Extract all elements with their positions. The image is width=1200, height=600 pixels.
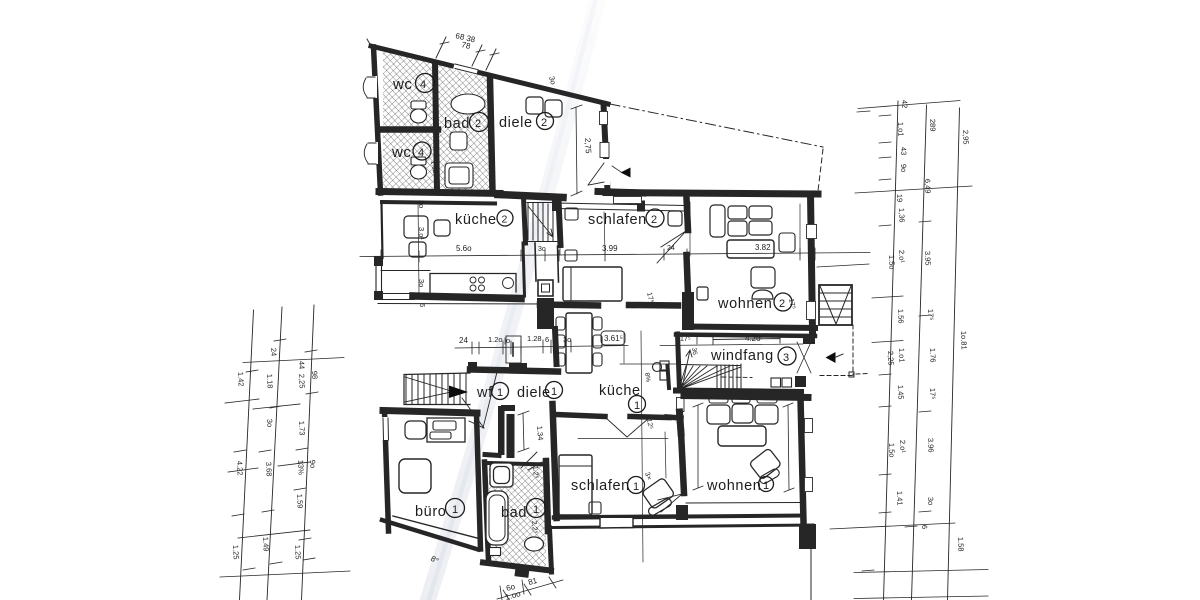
svg-text:1.59: 1.59 [295, 494, 305, 509]
svg-text:3.95: 3.95 [923, 251, 933, 266]
svg-text:2,25: 2,25 [297, 374, 307, 389]
svg-text:17⁵: 17⁵ [680, 336, 691, 343]
svg-text:wc: wc [392, 76, 413, 93]
svg-text:bad: bad [444, 116, 470, 132]
svg-text:6,49: 6,49 [923, 179, 933, 194]
svg-text:3.61⁵: 3.61⁵ [604, 334, 623, 343]
svg-text:17⁵: 17⁵ [928, 388, 937, 400]
svg-text:1.41: 1.41 [895, 491, 905, 506]
svg-text:3o: 3o [265, 419, 274, 428]
svg-text:6: 6 [545, 335, 549, 344]
svg-text:|o: |o [504, 336, 510, 345]
svg-text:1.25: 1.25 [293, 545, 303, 560]
svg-text:17⁵: 17⁵ [926, 309, 935, 321]
svg-text:1: 1 [497, 387, 504, 399]
svg-text:4: 4 [420, 79, 427, 91]
svg-text:1.o1: 1.o1 [896, 122, 906, 137]
svg-text:1: 1 [634, 400, 641, 412]
svg-text:1.25: 1.25 [231, 545, 241, 560]
svg-text:1: 1 [763, 480, 770, 492]
svg-text:98: 98 [310, 371, 319, 380]
svg-text:2: 2 [779, 298, 786, 310]
svg-text:bad: bad [501, 505, 527, 521]
svg-text:4.22: 4.22 [235, 461, 245, 476]
svg-text:13%: 13% [296, 460, 306, 476]
svg-text:wf: wf [476, 385, 493, 401]
svg-text:1.2⁵: 1.2⁵ [531, 466, 539, 479]
svg-text:1.18: 1.18 [265, 374, 275, 389]
svg-text:3o: 3o [926, 497, 935, 506]
svg-text:9o: 9o [308, 460, 317, 469]
svg-text:2.o¹: 2.o¹ [897, 250, 906, 264]
svg-text:1.49: 1.49 [261, 537, 271, 552]
svg-text:2,95: 2,95 [961, 130, 971, 145]
svg-text:küche: küche [455, 212, 497, 228]
svg-text:1.28: 1.28 [527, 334, 542, 343]
svg-text:wohnen: wohnen [717, 296, 772, 312]
svg-text:1: 1 [533, 504, 540, 516]
svg-text:1.56: 1.56 [896, 309, 906, 324]
svg-text:24: 24 [667, 245, 675, 252]
svg-text:289: 289 [928, 119, 937, 132]
svg-text:19: 19 [895, 194, 904, 203]
svg-text:1: 1 [633, 481, 640, 493]
svg-text:42: 42 [900, 100, 909, 109]
svg-text:3.68: 3.68 [264, 462, 274, 477]
svg-text:1.5o: 1.5o [887, 443, 897, 458]
svg-text:küche: küche [599, 383, 641, 399]
svg-text:3: 3 [783, 352, 790, 364]
svg-text:1: 1 [551, 386, 558, 398]
svg-text:diele: diele [499, 115, 533, 131]
svg-text:4.2o: 4.2o [745, 334, 761, 343]
svg-text:24: 24 [269, 348, 278, 357]
svg-text:3.82: 3.82 [755, 243, 771, 252]
svg-text:3o: 3o [538, 246, 546, 253]
svg-text:1,36: 1,36 [897, 208, 907, 223]
svg-text:9o: 9o [899, 164, 908, 173]
svg-text:1.76: 1.76 [928, 348, 938, 363]
svg-text:2: 2 [502, 214, 508, 226]
svg-text:2: 2 [475, 118, 482, 130]
svg-text:43: 43 [899, 147, 908, 156]
svg-text:wohnen: wohnen [706, 478, 761, 494]
svg-text:wc: wc [391, 144, 412, 161]
svg-text:2: 2 [541, 117, 548, 129]
svg-text:1.45: 1.45 [896, 385, 906, 400]
svg-text:2,2⁵: 2,2⁵ [530, 521, 538, 534]
svg-text:24: 24 [459, 336, 468, 345]
svg-text:2,75: 2,75 [583, 138, 593, 155]
svg-text:büro: büro [415, 504, 446, 520]
svg-text:6: 6 [418, 303, 427, 307]
svg-text:2: 2 [651, 214, 658, 226]
svg-text:4: 4 [418, 147, 425, 159]
svg-text:1.o1: 1.o1 [897, 348, 907, 363]
svg-text:1.2o: 1.2o [488, 335, 503, 344]
svg-text:3o: 3o [417, 279, 426, 287]
svg-text:3.99: 3.99 [602, 244, 618, 253]
svg-text:3.96: 3.96 [926, 438, 936, 453]
svg-text:44: 44 [297, 361, 306, 370]
svg-text:1: 1 [452, 504, 459, 516]
svg-text:1.5o: 1.5o [887, 255, 897, 270]
svg-text:schlafen: schlafen [571, 478, 630, 494]
svg-text:3o: 3o [563, 335, 571, 344]
svg-text:schlafen: schlafen [588, 212, 647, 228]
svg-text:6: 6 [920, 525, 929, 529]
svg-text:2.o¹: 2.o¹ [898, 440, 907, 454]
svg-text:1.42: 1.42 [236, 372, 246, 387]
svg-text:3.o¹: 3.o¹ [417, 227, 426, 240]
svg-text:windfang: windfang [710, 348, 774, 364]
svg-text:5.6o: 5.6o [456, 244, 472, 253]
svg-text:1.34: 1.34 [535, 425, 545, 440]
svg-text:1.73: 1.73 [297, 421, 307, 436]
svg-text:2,25: 2,25 [886, 351, 896, 366]
svg-text:3o: 3o [417, 200, 426, 208]
svg-text:1o.81: 1o.81 [959, 331, 969, 350]
svg-text:1.58: 1.58 [956, 537, 966, 552]
